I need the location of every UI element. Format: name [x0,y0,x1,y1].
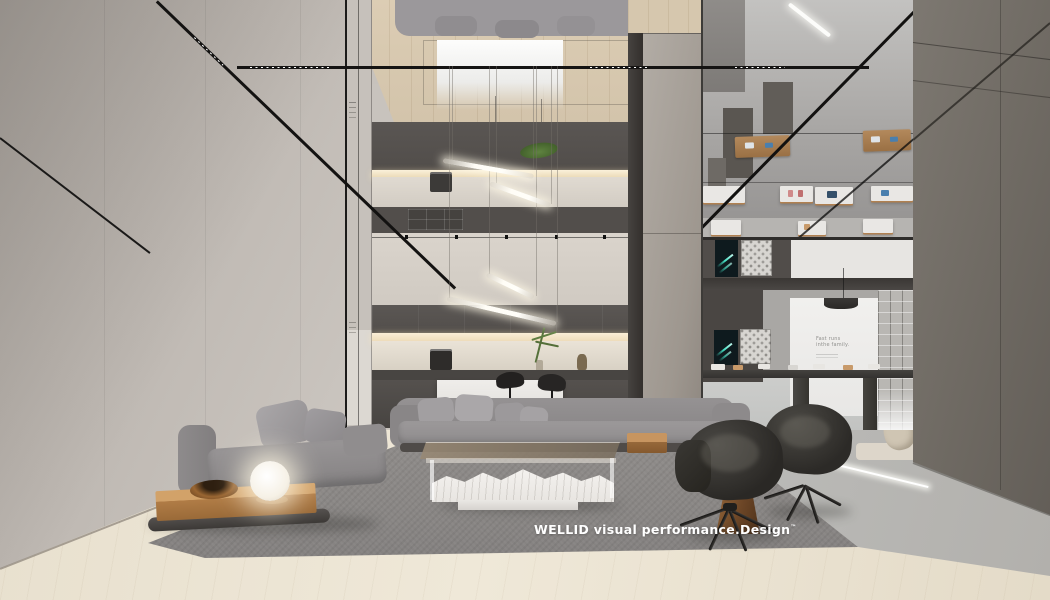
poster-text: Fast runs inthe family. [816,336,849,348]
device-screen [745,142,754,148]
led-cove-lower [372,333,648,341]
tile-panel-upper [741,240,772,276]
pendant-lamp [824,298,858,309]
column-ceiling-wood [628,0,703,33]
display-case [863,219,893,233]
display-table-top [703,370,913,378]
wall-seam-line [913,42,1050,60]
column [628,0,703,430]
table-device [758,364,770,369]
wall-seam [104,0,105,570]
marble-sculpture [432,460,614,502]
ceiling-track [237,66,869,69]
reflected-column [763,82,793,134]
table-device [711,364,725,370]
pendant-wire [452,66,453,160]
open-shelves [408,209,463,230]
partition-text-hint [349,102,356,103]
pendant-stem [843,268,844,300]
coffee-table [420,436,642,512]
table-device [868,364,880,369]
teal-streak [717,254,734,267]
pendant-wire [536,66,537,296]
chair-seat-highlight [701,434,759,472]
display-item [881,190,889,196]
table-plinth [458,500,578,510]
upper-floor-white-wall [791,240,913,282]
column-seam [643,233,703,234]
wall-vertical-seam [1000,0,1001,490]
display-case [871,186,913,201]
left-sofa-group [108,395,398,545]
display-item [827,191,837,198]
mirror-seam [703,182,913,183]
table-device [843,365,853,370]
interior-render-scene: Fast runs inthe family. [0,0,1050,600]
wall-diagonal-seam [913,22,1050,140]
table-device [733,365,743,370]
track-led-dots [735,67,785,69]
media-screen-lower [714,330,738,365]
reflected-display-table [863,129,912,152]
mirror-wall [703,0,913,240]
track-led-dots [250,67,330,69]
table-device [813,364,825,369]
display-case [711,220,741,235]
mirror-side-right [610,458,614,498]
track-led-dots [590,67,648,69]
mezzanine-back-wall [372,233,648,305]
poster-line2: inthe family. [816,342,849,348]
glass-edge [426,458,616,463]
media-screen-upper [715,240,738,277]
reflected-light-bar [788,2,831,37]
watermark: WELLID visual performance.Design™ [534,522,797,537]
shelving-glow [878,388,913,430]
watermark-mark: ™ [790,524,796,531]
counter-plant [523,327,557,372]
device-screen [871,136,880,142]
pendant-wire [551,66,552,204]
table-leg [863,378,877,430]
rail-cable [372,237,648,238]
partition-frame [358,0,359,428]
display-item [798,190,803,197]
chair-hub [723,503,737,511]
backsplash [372,341,648,370]
partition-frame [345,0,347,428]
kitchen-upper-cabinets [372,305,648,333]
tile-panel-lower [740,329,771,364]
mezzanine-cabinets [372,122,648,172]
pendant-wire [557,66,558,322]
column-shadow-gap [628,33,643,430]
pendant-wire [533,66,534,170]
sofa-pillow [454,394,494,424]
watermark-text: WELLID visual performance.Design [534,522,790,537]
plant-leaf [531,331,556,341]
mirror-side-left [430,460,434,500]
counter-figure [577,354,587,370]
sofa-end-cushion [342,423,388,457]
coffee-machine [430,349,452,370]
pendant-wire [496,66,497,183]
sphere-lamp [250,461,290,501]
poster-caption-hint [816,354,838,355]
plant-leaf [535,327,545,362]
partition-text-hint [349,322,356,323]
table-device [788,365,798,370]
column-face [643,33,703,431]
floor-slab [703,278,913,290]
display-item [788,190,793,197]
device-screen [765,143,773,148]
glass-top [420,442,620,459]
pendant-wire [449,66,450,298]
reflected-beam [703,0,745,92]
display-case [780,186,813,202]
device-screen [890,137,898,142]
wall-seam-line [913,80,1050,98]
